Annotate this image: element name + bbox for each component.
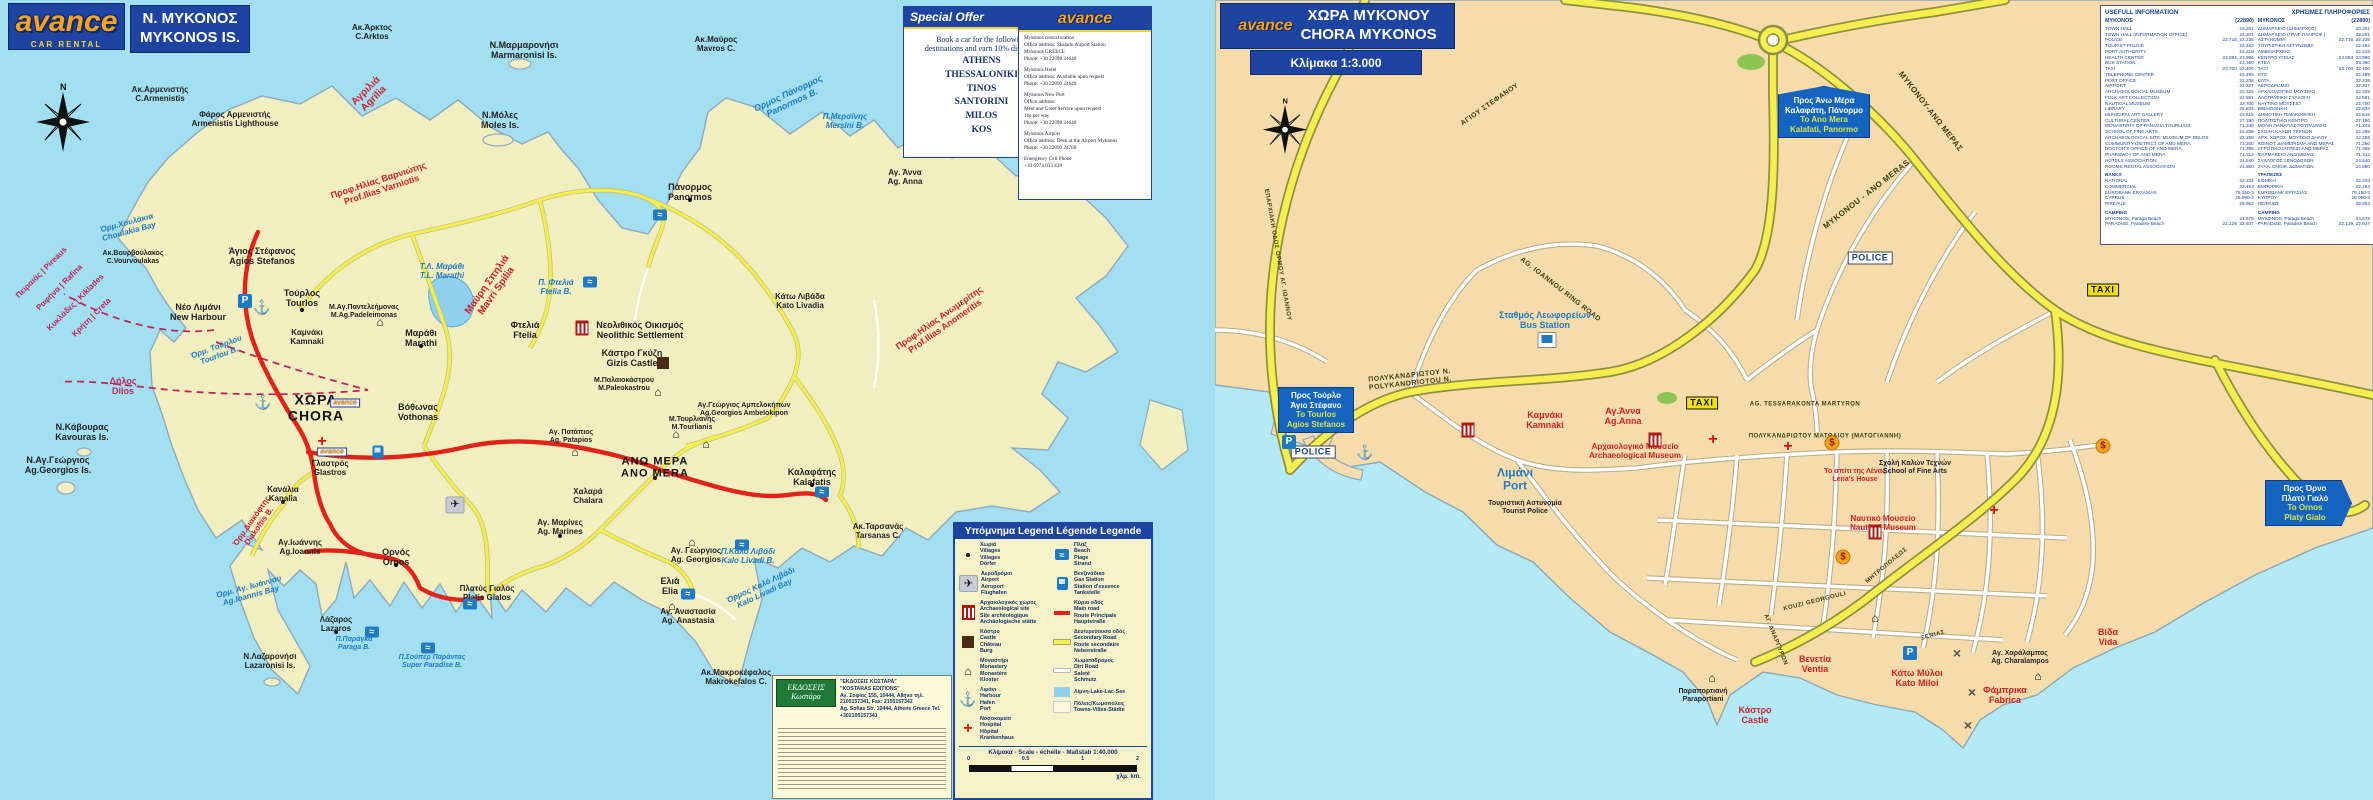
castle-icon [657, 357, 669, 369]
dot-icon [281, 500, 285, 504]
avance-icon: avance [317, 448, 347, 457]
anchor-icon: ⚓ [254, 395, 271, 409]
dot-icon [300, 308, 304, 312]
dollar-icon: $ [2096, 439, 2111, 454]
beach-icon: ≈ [815, 487, 829, 498]
museum-icon [1462, 423, 1475, 438]
monastery-icon: ⌂ [702, 438, 709, 450]
windmill-icon: × [1953, 646, 1961, 660]
beach-icon: ≈ [681, 589, 695, 600]
mykonos-tourist-map: N avance CAR RENTAL Ν. ΜΥΚΟΝΟΣ MYKONOS I… [0, 0, 2373, 800]
monastery-icon: ⌂ [654, 386, 661, 398]
taxi-icon: TAXI [1686, 397, 1718, 410]
beach-icon: ≈ [583, 277, 597, 288]
dollar-icon: $ [1825, 436, 1840, 451]
parking-icon: P [238, 294, 252, 308]
bus-icon [1538, 332, 1557, 348]
taxi-icon: TAXI [2087, 284, 2119, 297]
beach-icon: ≈ [365, 627, 379, 638]
cross-icon: + [1708, 432, 1717, 448]
anchor-icon: ⚓ [253, 300, 270, 314]
beach-icon: ≈ [421, 643, 435, 654]
dot-icon [558, 534, 562, 538]
dot-icon [419, 344, 423, 348]
museum-icon [1869, 525, 1882, 540]
beach-icon: ≈ [735, 540, 749, 551]
parking-icon: P [1282, 435, 1296, 449]
police-icon: POLICE [1291, 446, 1336, 459]
cross-icon: + [317, 434, 326, 450]
museum-icon [1649, 433, 1662, 448]
island-map-panel: N avance CAR RENTAL Ν. ΜΥΚΟΝΟΣ MYKONOS I… [0, 0, 1215, 800]
windmill-icon: × [1968, 685, 1976, 699]
monastery-icon: ⌂ [571, 446, 578, 458]
windmill-icon: × [1964, 718, 1972, 732]
monastery-icon: ⌂ [668, 600, 675, 612]
parking-icon: P [1903, 646, 1917, 660]
dollar-icon: $ [1836, 550, 1851, 565]
beach-icon: ≈ [463, 599, 477, 610]
museum-icon [576, 321, 589, 336]
beach-icon: ≈ [653, 210, 667, 221]
cross-icon: + [1783, 439, 1792, 455]
dot-icon [334, 630, 338, 634]
plane-icon: ✈ [446, 497, 465, 514]
island-icons-layer: ⚓⚓P✈+⌂⌂⌂⌂⌂⌂⌂≈≈≈≈≈≈≈≈avanceavance [0, 0, 1215, 800]
gas-icon [373, 446, 384, 459]
monastery-icon: ⌂ [688, 536, 695, 548]
monastery-icon: ⌂ [376, 316, 383, 328]
church-icon: ⌂ [1871, 612, 1878, 624]
church-icon: ⌂ [1708, 672, 1715, 684]
avance-icon: avance [330, 399, 360, 408]
anchor-icon: ⚓ [1356, 445, 1373, 459]
monastery-icon: ⌂ [672, 428, 679, 440]
police-icon: POLICE [1848, 252, 1893, 265]
dot-icon [653, 476, 657, 480]
town-map-panel: avance ΧΩΡΑ ΜΥΚΟΝΟΥ CHORA MYKONOS Κλίμακ… [1215, 0, 2373, 800]
dot-icon [394, 563, 398, 567]
dot-icon [688, 198, 692, 202]
church-icon: ⌂ [2034, 670, 2041, 682]
cross-icon: + [1989, 503, 1998, 519]
dot-icon [810, 483, 814, 487]
town-icons-layer: TAXITAXIPOLICEPOLICEPP+++$$$×××⌂⌂⌂⚓ [1215, 0, 2373, 800]
